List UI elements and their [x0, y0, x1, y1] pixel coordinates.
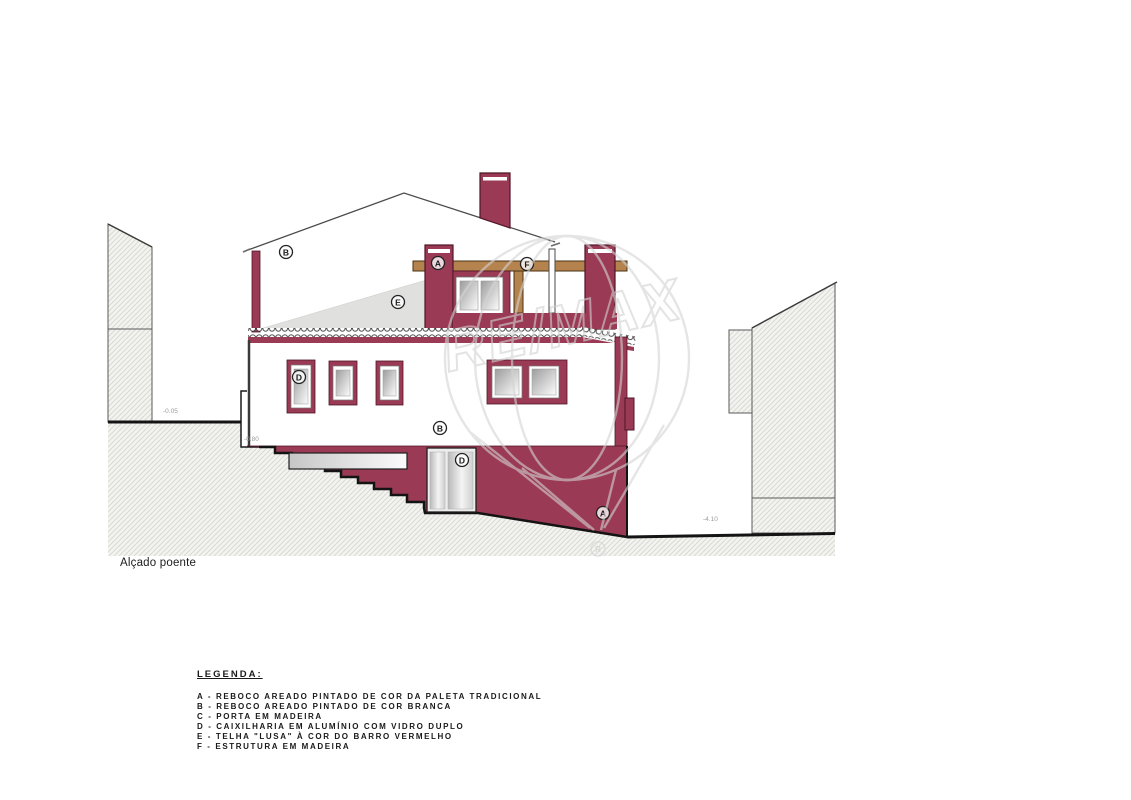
- svg-text:D: D: [296, 373, 302, 383]
- drawing-title: Alçado poente: [120, 557, 196, 569]
- svg-text:E: E: [395, 298, 401, 308]
- chimney-cap-slit: [483, 177, 507, 181]
- left-pillar-slit: [428, 249, 450, 253]
- gable-edge-strip: [252, 251, 260, 332]
- window-3: [376, 361, 403, 405]
- left-neighbor-building: [108, 224, 152, 422]
- left-neighbor-wall: [108, 224, 152, 422]
- chimney: [480, 173, 510, 228]
- legend-item-a: A - REBOCO AREADO PINTADO DE COR DA PALE…: [197, 692, 542, 702]
- legend-item-d: D - CAIXILHARIA EM ALUMÍNIO COM VIDRO DU…: [197, 722, 542, 732]
- marker-door-frame: D: [456, 454, 469, 467]
- legend-item-e: E - TELHA "LUSA" À COR DO BARRO VERMELHO: [197, 732, 542, 742]
- marker-wall-render: B: [434, 422, 447, 435]
- svg-text:B: B: [283, 248, 289, 258]
- svg-text:B: B: [437, 424, 443, 434]
- right-wall-ledge: [625, 398, 634, 430]
- marker-pillar-render: A: [432, 257, 445, 270]
- marker-window-frame: D: [293, 371, 306, 384]
- window-2: [329, 361, 357, 405]
- marker-roof-tile: E: [392, 296, 405, 309]
- svg-text:A: A: [435, 259, 441, 269]
- legend-item-b: B - REBOCO AREADO PINTADO DE COR BRANCA: [197, 702, 542, 712]
- legend-item-c: C - PORTA EM MADEIRA: [197, 712, 542, 722]
- right-neighbor-annex: [729, 330, 752, 413]
- registered-mark-letter: R: [595, 545, 601, 554]
- legend: LEGENDA: A - REBOCO AREADO PINTADO DE CO…: [197, 669, 542, 752]
- marker-gable-render: B: [280, 246, 293, 259]
- elevation-drawing: B E A F D B D A -0.0: [0, 0, 1131, 800]
- legend-heading: LEGENDA:: [197, 669, 542, 680]
- level-lower-ground: -4.10: [703, 516, 718, 523]
- right-neighbor-building: [729, 282, 837, 533]
- legend-item-f: F - ESTRUTURA EM MADEIRA: [197, 742, 542, 752]
- level-steps-top: -0.80: [244, 436, 259, 443]
- level-street: -0.05: [163, 408, 178, 415]
- elevation-sheet: B E A F D B D A -0.0: [0, 0, 1131, 800]
- svg-text:D: D: [459, 456, 465, 466]
- window-1: [287, 360, 315, 413]
- basement-slot-window: [289, 453, 407, 469]
